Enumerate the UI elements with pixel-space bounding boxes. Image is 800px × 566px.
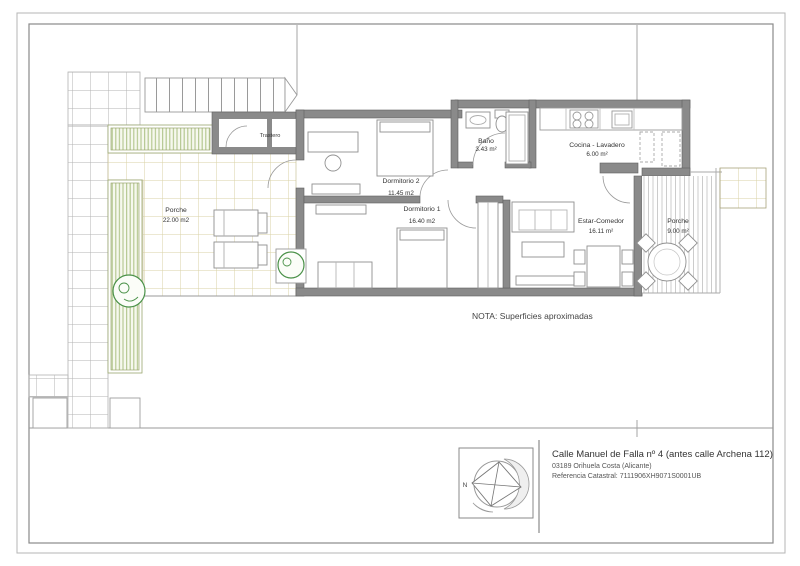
floor-plan-svg: Porche 22.00 m2 Trastero Dormitorio 2 11… — [0, 0, 800, 566]
room-label-dormitorio-1: Dormitorio 1 — [403, 206, 440, 213]
appliance-dashed — [640, 132, 654, 162]
dining-table — [587, 246, 620, 287]
address-line-3: Referencia Catastral: 7111906XH9071S0001… — [552, 473, 702, 480]
room-area-porche-left: 22.00 m2 — [163, 217, 190, 224]
address-line-1: Calle Manuel de Falla nº 4 (antes calle … — [552, 449, 773, 460]
dining-chair — [574, 250, 585, 264]
room-label-bano: Baño — [478, 138, 494, 145]
room-area-cocina: 6.00 m² — [586, 151, 607, 158]
dining-chair — [622, 250, 633, 264]
sun-lounger — [214, 210, 258, 236]
living-furniture — [512, 202, 633, 287]
room-area-estar: 16.11 m² — [589, 228, 613, 235]
garden-step-left — [33, 398, 67, 428]
garden-step-right — [110, 398, 140, 428]
address-line-2: 03189 Orihuela Costa (Alicante) — [552, 463, 652, 470]
sofa-dorm1 — [318, 262, 372, 288]
trastero-block — [212, 112, 302, 154]
tree-icon — [278, 252, 304, 278]
porch-right-tiles-corner — [720, 168, 766, 208]
dormitorio1-furniture — [316, 202, 498, 288]
kitchen-terrace-door-arc — [603, 176, 630, 203]
kitchen-furniture — [540, 108, 682, 166]
plot-boundary-lines — [297, 25, 637, 437]
title-block: N Calle Manuel de Falla nº 4 (antes call… — [459, 440, 773, 533]
room-label-porche-left: Porche — [165, 207, 187, 214]
room-label-porche-right: Porche — [667, 218, 689, 225]
roof-band — [145, 78, 297, 112]
shelf-dorm1 — [316, 205, 366, 214]
shelf-dorm2 — [312, 184, 360, 194]
dining-chair — [574, 272, 585, 286]
tv-bench — [516, 276, 574, 285]
compass-north-label: N — [463, 482, 468, 489]
note-text: NOTA: Superficies aproximadas — [472, 311, 593, 321]
coffee-table — [522, 242, 564, 257]
bathroom-fixtures — [466, 110, 528, 164]
kitchen-counter — [540, 108, 682, 130]
chair-dorm2 — [325, 155, 341, 171]
room-area-dormitorio-2: 11.45 m2 — [388, 190, 414, 197]
porch-right — [637, 168, 766, 293]
room-label-cocina: Cocina - Lavadero — [569, 142, 625, 149]
plan-sheet: Porche 22.00 m2 Trastero Dormitorio 2 11… — [0, 0, 800, 566]
room-label-dormitorio-2: Dormitorio 2 — [382, 178, 419, 185]
appliance-dashed-2 — [662, 132, 680, 166]
sun-lounger — [214, 242, 258, 268]
room-area-bano: 3.43 m² — [475, 146, 496, 153]
room-area-dormitorio-1: 16.40 m2 — [409, 218, 436, 225]
sofa-living — [512, 202, 574, 232]
room-label-estar: Estar-Comedor — [578, 218, 625, 225]
tree-icon — [113, 275, 145, 307]
dining-chair — [622, 272, 633, 286]
desk-dorm2 — [308, 132, 358, 152]
room-label-trastero: Trastero — [260, 133, 281, 139]
room-area-porche-right: 9.00 m² — [667, 228, 688, 235]
dorm1-door-arc — [448, 200, 476, 228]
